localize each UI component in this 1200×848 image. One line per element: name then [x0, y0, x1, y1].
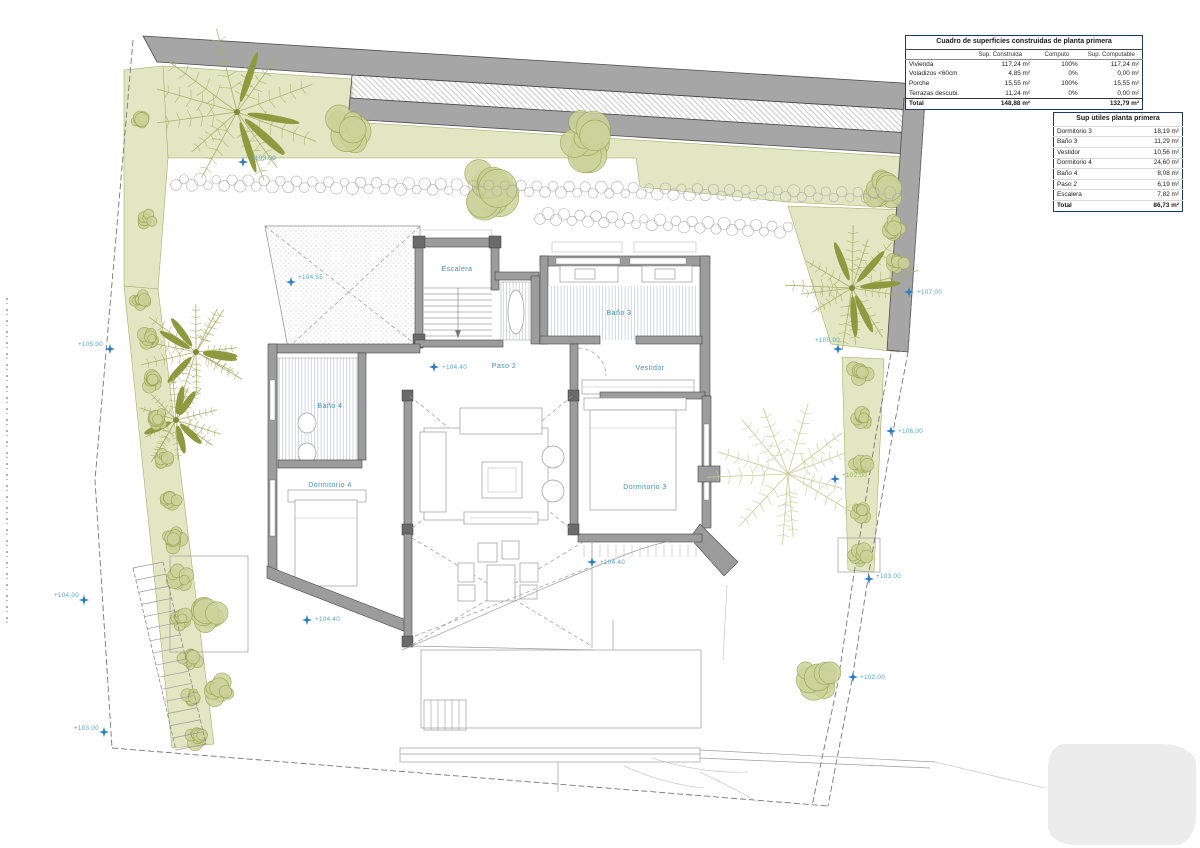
room-label-vestidor: Vestidor [636, 365, 665, 372]
svg-text:+105.00: +105.00 [78, 341, 103, 348]
svg-text:+103.00: +103.00 [251, 155, 276, 162]
room-label-dorm3: Dormitorio 3 [623, 484, 667, 491]
svg-text:+107.00: +107.00 [917, 289, 942, 296]
garden-left-column [124, 66, 168, 290]
col-blank [906, 49, 968, 59]
elevation-marker: +104.40 [587, 557, 625, 567]
boundary-dashed-bottom [112, 748, 828, 806]
elevation-marker: +103.00 [74, 725, 109, 737]
useful-table-title: Sup utiles planta primera [1054, 113, 1183, 127]
svg-text:+104.00: +104.00 [54, 592, 79, 599]
terrace-lower [402, 534, 712, 650]
site-plan-drawing: Escalera Paso 2 Baño 3 Vestidor Dormitor… [0, 0, 1200, 848]
elevation-marker: +102.00 [848, 672, 885, 682]
table-total-row: Total86,73 m² [1054, 200, 1183, 211]
svg-text:+104.40: +104.40 [442, 364, 467, 371]
elevation-marker: +103.00 [864, 573, 901, 584]
svg-text:+104.40: +104.40 [600, 559, 625, 566]
room-label-bath3: Baño 3 [607, 310, 632, 317]
col-sup-construida: Sup. Construida [967, 49, 1033, 59]
void-over-living [402, 390, 579, 535]
elevation-marker: +105.00 [78, 341, 115, 354]
table-total-row: Total 148,88 m² 132,79 m² [906, 99, 1143, 110]
garden-left-strip [124, 286, 214, 748]
svg-text:+106.00: +106.00 [898, 428, 923, 435]
table-row: Baño 48,08 m² [1054, 169, 1183, 180]
room-label-dorm4: Dormitorio 4 [308, 482, 352, 489]
svg-text:+105.00: +105.00 [815, 337, 840, 344]
svg-text:+103.00: +103.00 [74, 725, 99, 732]
svg-text:+104.55: +104.55 [298, 274, 323, 281]
built-surfaces-table: Cuadro de superficies construidas de pla… [905, 35, 1143, 110]
house-plan [265, 226, 738, 650]
room-label-escalera: Escalera [442, 266, 473, 273]
room-label-bath4: Baño 4 [318, 403, 343, 410]
garden-areas [124, 66, 910, 748]
room-bath3 [540, 242, 710, 396]
floor-plan-sheet: Escalera Paso 2 Baño 3 Vestidor Dormitor… [0, 0, 1200, 848]
elevation-marker: +105.00 [815, 337, 843, 354]
svg-text:+103.00: +103.00 [876, 573, 901, 580]
louvre-ticks [584, 545, 696, 557]
table-row: Paso 26,19 m² [1054, 179, 1183, 190]
table-row: Vestidor10,56 m² [1054, 147, 1183, 158]
elevation-marker: +104.40 [302, 615, 340, 625]
col-sup-computable: Sup. Computable [1081, 49, 1143, 59]
table-row: Vivienda 117,24 m² 100% 117,24 m² [906, 59, 1143, 69]
logo-watermark [1048, 744, 1196, 845]
stair-treads [424, 288, 492, 338]
table-row: Voladizos <60cm 4,85 m² 0% 0,00 m² [906, 70, 1143, 80]
useful-surfaces-table: Sup utiles planta primera Dormitorio 318… [1053, 112, 1183, 212]
elevation-marker: +104.40 [429, 362, 467, 372]
table-row: Terrazas descubi. 11,24 m² 0% 0,00 m² [906, 89, 1143, 99]
elevation-marker: +104.00 [54, 592, 89, 605]
table-row: Dormitorio 318,19 m² [1054, 126, 1183, 137]
margin-fine-print [6, 298, 8, 628]
room-shaft [495, 272, 540, 344]
table-row: Dormitorio 424,60 m² [1054, 158, 1183, 169]
svg-text:+102.00: +102.00 [860, 674, 885, 681]
table-row: Baño 311,29 m² [1054, 137, 1183, 148]
room-dorm4 [267, 490, 406, 632]
svg-text:+102.00: +102.00 [842, 472, 867, 479]
table-row: Porche 15,55 m² 100% 15,55 m² [906, 79, 1143, 89]
elevation-marker: +106.00 [886, 426, 923, 436]
room-escalera [413, 230, 503, 348]
roof-terrace-upper [265, 226, 420, 348]
col-computo: Computo [1033, 49, 1081, 59]
built-table-title: Cuadro de superficies construidas de pla… [906, 36, 1143, 50]
room-label-paso2: Paso 2 [492, 363, 517, 370]
svg-text:+104.40: +104.40 [315, 616, 340, 623]
table-row: Escalera7,82 m² [1054, 190, 1183, 201]
